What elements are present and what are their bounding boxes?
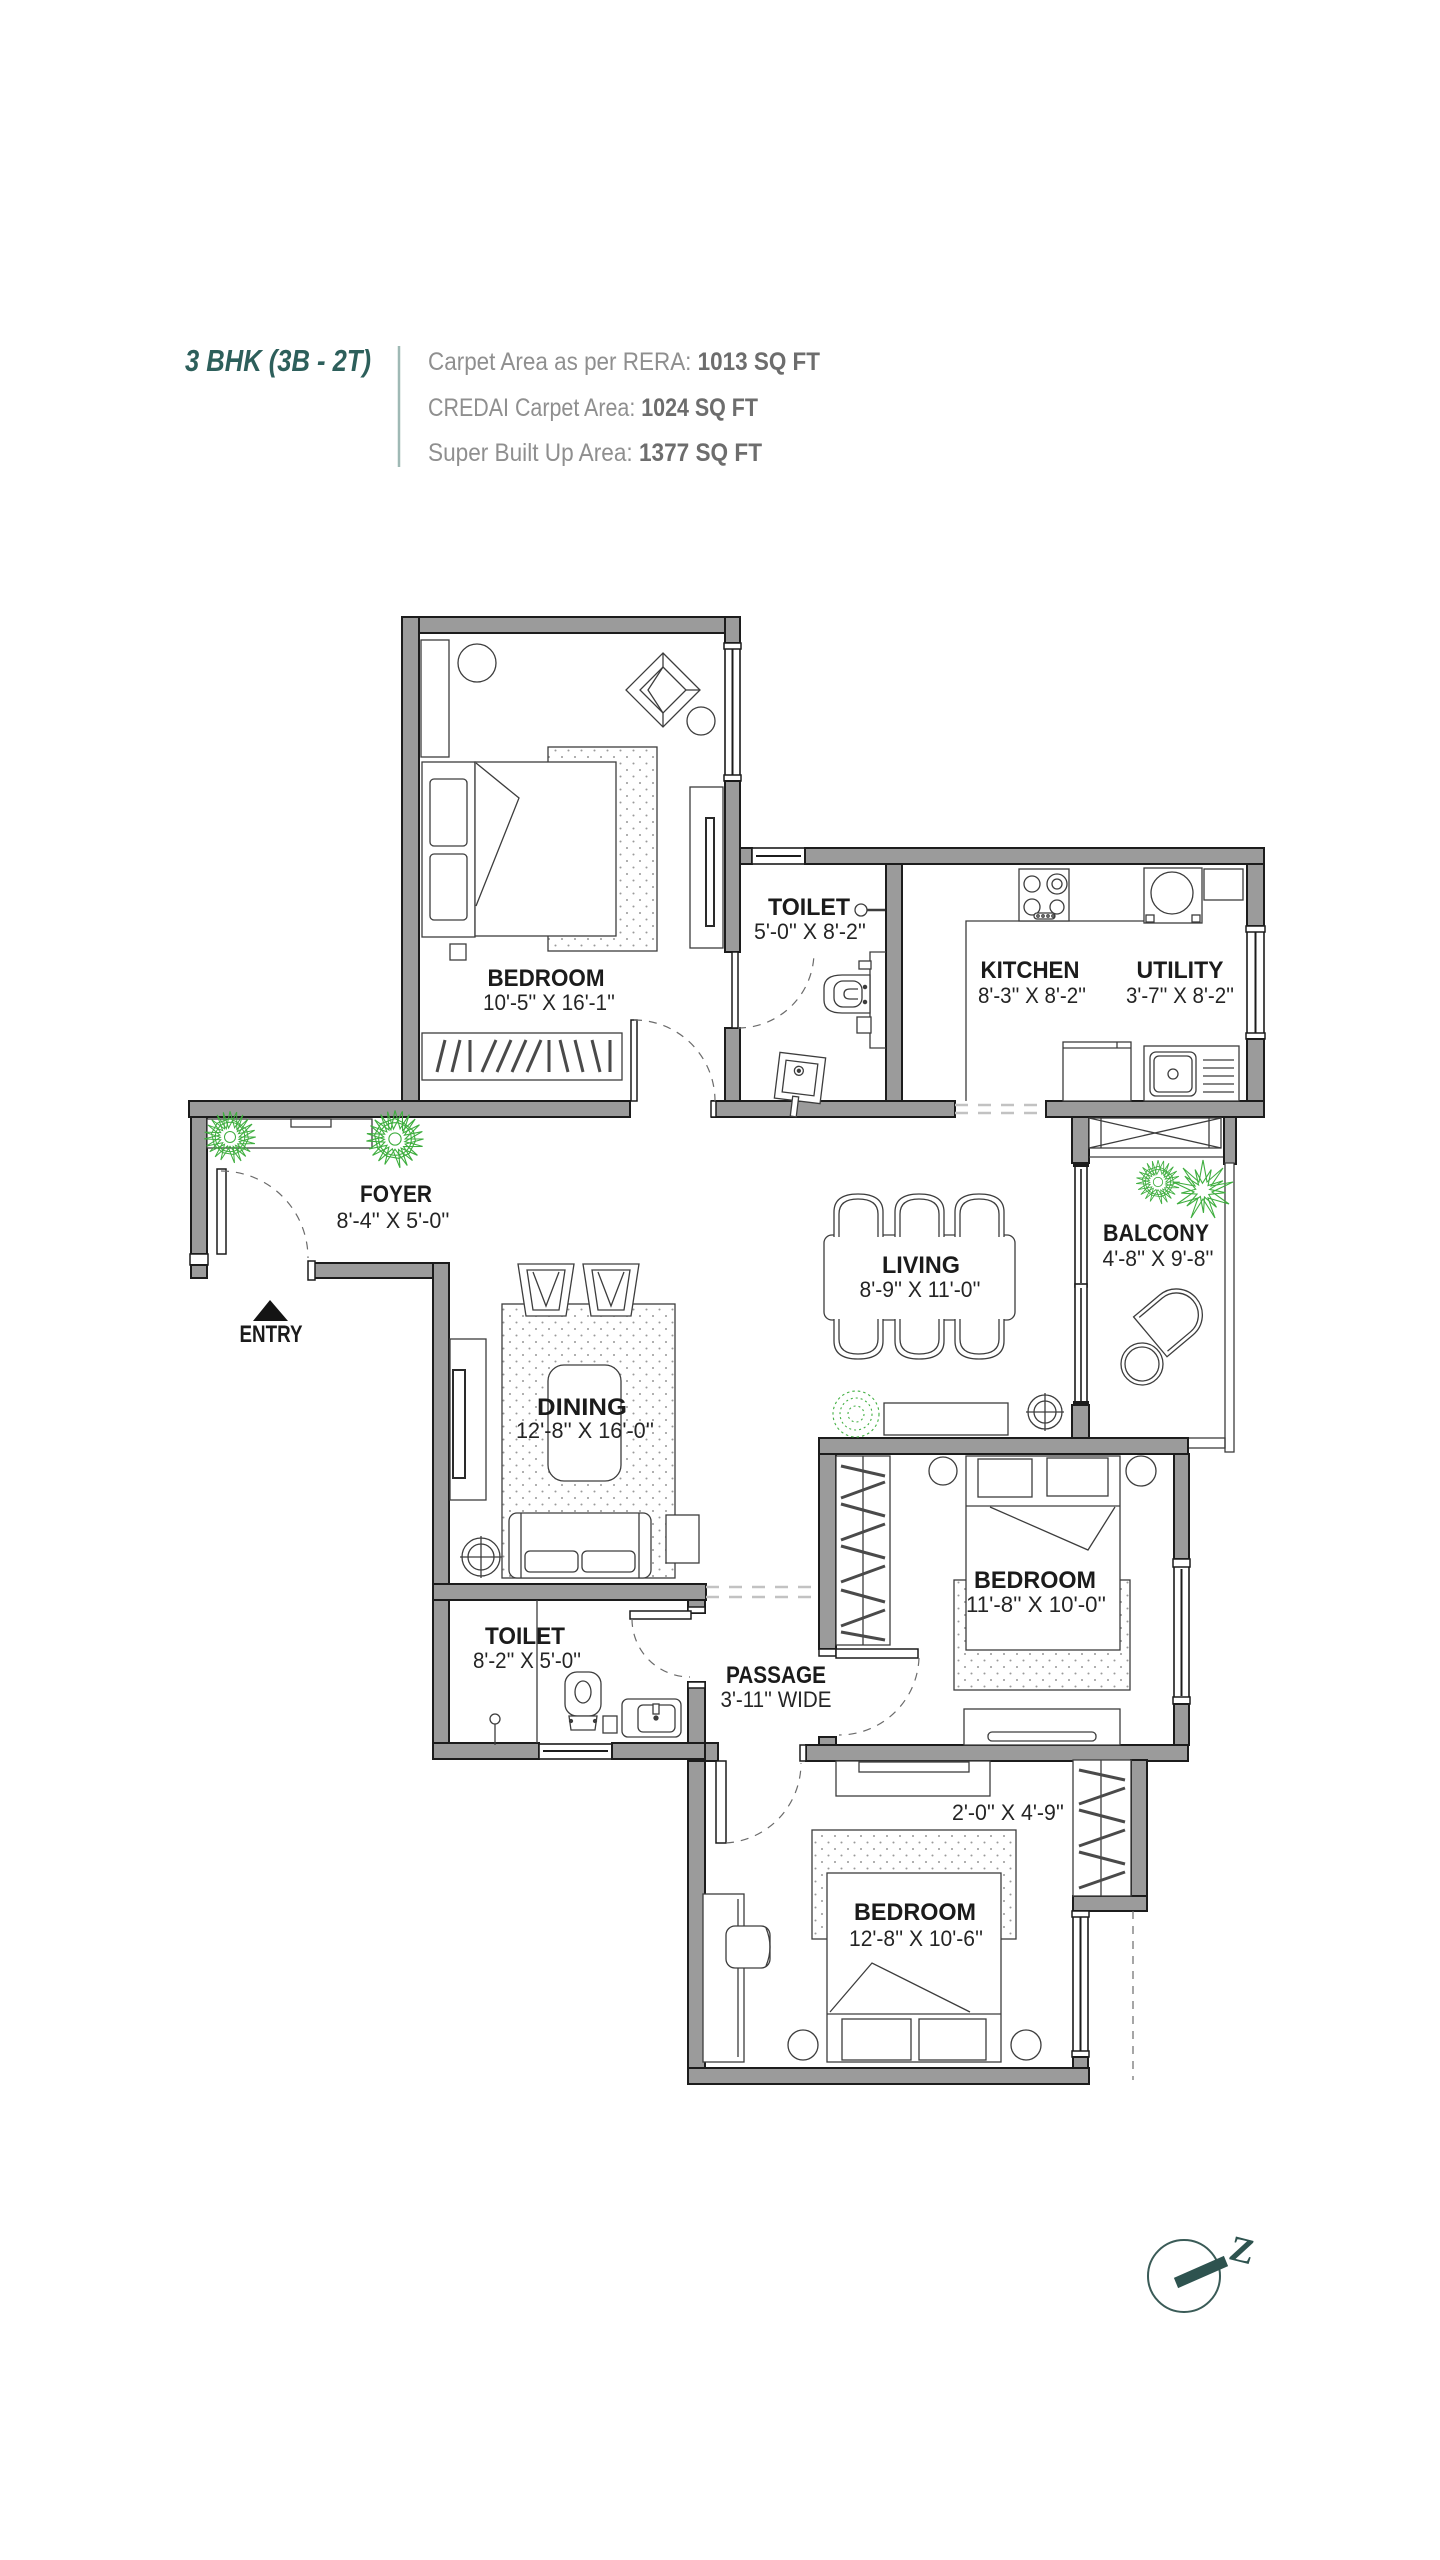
svg-text:8'-4'' X 5'-0'': 8'-4'' X 5'-0'' <box>337 1208 450 1233</box>
svg-text:3 BHK (3B - 2T): 3 BHK (3B - 2T) <box>185 343 371 378</box>
svg-text:2'-0'' X 4'-9'': 2'-0'' X 4'-9'' <box>952 1800 1064 1825</box>
svg-text:8'-3'' X 8'-2'': 8'-3'' X 8'-2'' <box>978 983 1086 1008</box>
svg-text:BEDROOM: BEDROOM <box>488 965 605 992</box>
svg-text:3'-7'' X 8'-2'': 3'-7'' X 8'-2'' <box>1126 983 1234 1008</box>
svg-text:8'-2'' X 5'-0'': 8'-2'' X 5'-0'' <box>473 1648 581 1673</box>
svg-text:12'-8'' X 16'-0'': 12'-8'' X 16'-0'' <box>516 1418 654 1443</box>
svg-text:10'-5'' X 16'-1'': 10'-5'' X 16'-1'' <box>483 990 615 1015</box>
svg-text:KITCHEN: KITCHEN <box>981 957 1080 984</box>
svg-text:4'-8'' X 9'-8'': 4'-8'' X 9'-8'' <box>1103 1246 1214 1271</box>
svg-text:TOILET: TOILET <box>768 894 850 921</box>
svg-text:Super Built Up Area: 1377 SQ: Super Built Up Area: 1377 SQ FT <box>428 439 762 467</box>
svg-text:BALCONY: BALCONY <box>1103 1220 1209 1247</box>
svg-text:CREDAI Carpet Area: 1024 SQ FT: CREDAI Carpet Area: 1024 SQ FT <box>428 394 758 422</box>
svg-text:DINING: DINING <box>537 1394 627 1421</box>
svg-text:ENTRY: ENTRY <box>240 1321 303 1348</box>
svg-text:11'-8'' X 10'-0'': 11'-8'' X 10'-0'' <box>966 1592 1106 1617</box>
svg-text:8'-9'' X 11'-0'': 8'-9'' X 11'-0'' <box>860 1277 981 1302</box>
svg-text:LIVING: LIVING <box>882 1252 960 1279</box>
svg-text:3'-11'' WIDE: 3'-11'' WIDE <box>721 1687 832 1712</box>
svg-text:Carpet Area as per RERA: 1013: Carpet Area as per RERA: 1013 SQ FT <box>428 348 820 376</box>
svg-text:12'-8'' X 10'-6'': 12'-8'' X 10'-6'' <box>849 1926 983 1951</box>
svg-text:UTILITY: UTILITY <box>1137 957 1224 984</box>
svg-text:PASSAGE: PASSAGE <box>726 1662 826 1689</box>
svg-text:BEDROOM: BEDROOM <box>974 1567 1096 1594</box>
svg-text:BEDROOM: BEDROOM <box>854 1899 976 1926</box>
svg-text:FOYER: FOYER <box>360 1181 432 1208</box>
svg-text:TOILET: TOILET <box>485 1623 565 1650</box>
svg-text:5'-0'' X 8'-2'': 5'-0'' X 8'-2'' <box>754 919 866 944</box>
